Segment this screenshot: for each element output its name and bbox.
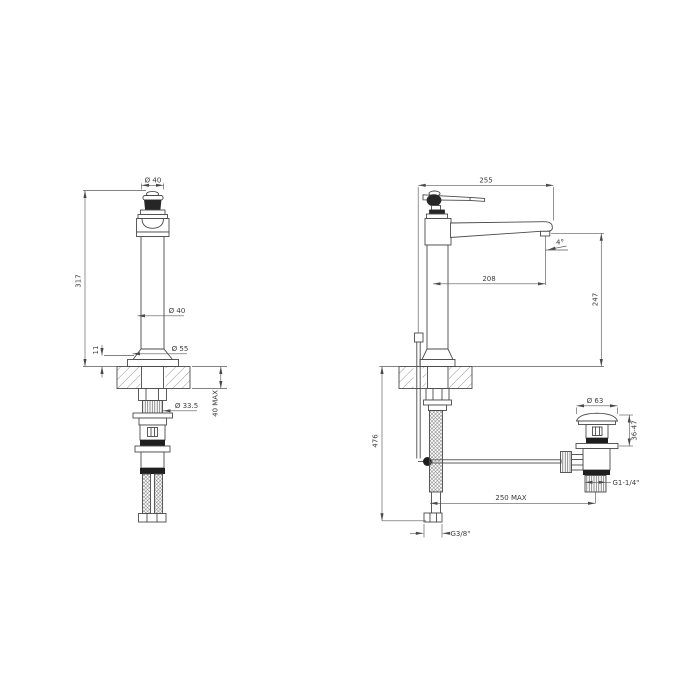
dim-shank-diameter: Ø 33.5 [163, 402, 198, 411]
dim-handle-diameter: Ø 40 [142, 177, 164, 190]
front-undercounter-assembly [133, 389, 173, 523]
dim-label-spout-reach: 208 [482, 275, 495, 283]
waste-rod-linkage [561, 452, 584, 473]
side-lever-handle [423, 191, 485, 219]
dim-below-deck: 476 [372, 367, 427, 521]
dim-label-spout-height: 247 [592, 293, 600, 306]
dim-label-rod-reach: 250 MAX [495, 494, 526, 502]
side-body-and-spout [420, 219, 552, 367]
spout-aerator [541, 231, 550, 236]
side-countertop-section [399, 367, 472, 389]
horizontal-rod [432, 460, 561, 463]
dim-label-base-diameter: Ø 55 [172, 345, 189, 353]
front-view: Ø 40 317 11 Ø 40 [75, 177, 228, 523]
dim-rod-reach: 250 MAX [430, 494, 596, 503]
dim-spout-height: 247 [472, 233, 604, 366]
dim-label-plug-diameter: Ø 63 [587, 397, 604, 405]
front-countertop-section [117, 367, 190, 389]
pop-up-waste [561, 413, 619, 503]
dim-plug-diameter: Ø 63 [577, 397, 618, 414]
front-handle [137, 191, 170, 236]
side-supply-hose [424, 411, 443, 523]
dim-label-base-height: 11 [92, 346, 100, 355]
waste-plug-cap [577, 413, 618, 421]
dim-label-adjust-range: 36-47 [631, 420, 639, 440]
dim-label-shank-diameter: Ø 33.5 [175, 402, 198, 410]
dim-hose-thread: G3/8" [410, 524, 470, 538]
dim-label-body-diameter: Ø 40 [169, 307, 186, 315]
dim-total-height: 317 [75, 191, 147, 367]
tap-dimension-drawing: Ø 40 317 11 Ø 40 [0, 0, 700, 700]
dim-label-overall-depth: 255 [479, 176, 492, 184]
technical-drawing-page: Ø 40 317 11 Ø 40 [0, 0, 700, 700]
dim-label-waste-thread: G1-1/4" [613, 479, 640, 487]
dim-label-below-deck: 476 [372, 434, 380, 448]
dim-label-deck-thickness: 40 MAX [212, 390, 220, 417]
dim-adjust-range: 36-47 [619, 415, 639, 446]
dim-label-spout-angle: 4° [556, 239, 564, 247]
side-undercounter-assembly [424, 389, 452, 523]
dim-label-hose-thread: G3/8" [451, 530, 471, 538]
dim-spout-reach: 208 [433, 275, 546, 284]
front-supply-hoses [139, 474, 167, 522]
dim-label-total-height: 317 [75, 274, 83, 287]
side-view: 255 4° 208 247 [372, 176, 640, 538]
spout [451, 222, 553, 238]
dim-label-handle-diameter: Ø 40 [145, 177, 162, 185]
dim-spout-angle: 4° [546, 237, 569, 286]
